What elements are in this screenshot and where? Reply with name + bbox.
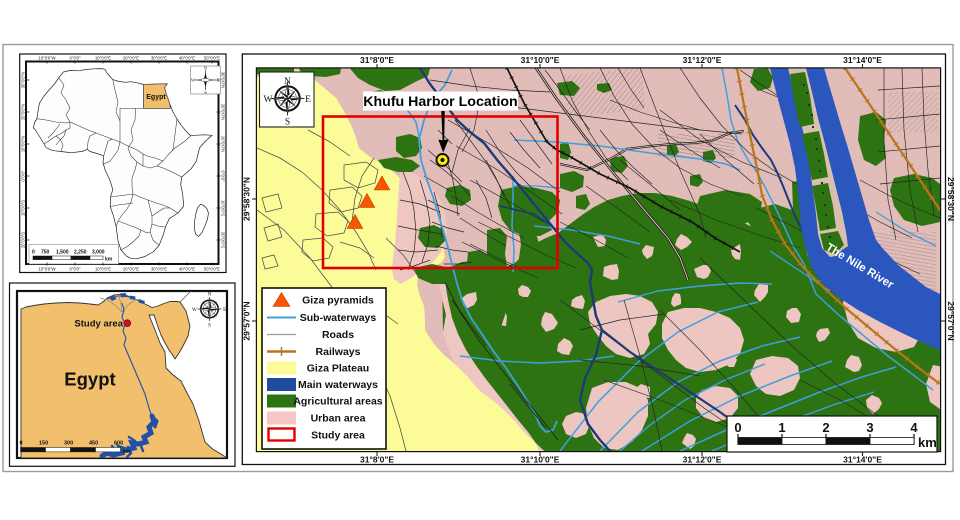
svg-text:20°0'0"N: 20°0'0"N: [221, 104, 226, 120]
svg-text:N: N: [208, 292, 212, 298]
svg-text:10°0'0"N: 10°0'0"N: [221, 136, 226, 152]
svg-text:450: 450: [89, 441, 98, 447]
svg-text:km: km: [105, 257, 113, 263]
svg-text:600: 600: [114, 441, 123, 447]
svg-text:Khufu Harbor Location: Khufu Harbor Location: [363, 94, 517, 110]
svg-text:Agricultural areas: Agricultural areas: [293, 396, 382, 408]
svg-text:0: 0: [32, 250, 35, 256]
svg-text:10°0'0"W: 10°0'0"W: [38, 56, 55, 61]
svg-text:31°10'0"E: 31°10'0"E: [521, 55, 560, 65]
svg-text:3: 3: [866, 420, 873, 435]
svg-text:Sub-waterways: Sub-waterways: [300, 312, 377, 324]
svg-text:1,500: 1,500: [56, 250, 69, 256]
svg-text:0°0'0": 0°0'0": [21, 170, 26, 181]
svg-text:20°0'0"S: 20°0'0"S: [21, 232, 26, 248]
svg-text:20°0'0"N: 20°0'0"N: [21, 104, 26, 120]
svg-text:29°57'0"N: 29°57'0"N: [946, 301, 956, 340]
svg-text:Urban area: Urban area: [311, 413, 366, 425]
svg-text:S: S: [285, 118, 290, 128]
svg-text:0°0'0": 0°0'0": [221, 171, 226, 182]
svg-text:31°12'0"E: 31°12'0"E: [683, 55, 722, 65]
svg-text:W: W: [192, 307, 197, 313]
svg-text:Egypt: Egypt: [146, 94, 166, 101]
svg-text:0: 0: [20, 441, 23, 447]
svg-text:10°0'0"E: 10°0'0"E: [95, 267, 111, 272]
svg-text:km: km: [918, 435, 937, 450]
svg-text:29°58'30"N: 29°58'30"N: [946, 177, 956, 221]
svg-text:S: S: [208, 322, 211, 328]
svg-text:0: 0: [734, 420, 741, 435]
svg-text:10°0'0"E: 10°0'0"E: [95, 56, 111, 61]
svg-text:31°14'0"E: 31°14'0"E: [843, 55, 882, 65]
svg-text:2: 2: [822, 420, 829, 435]
svg-text:Main waterways: Main waterways: [298, 379, 378, 391]
svg-text:40°0'0"E: 40°0'0"E: [179, 267, 195, 272]
svg-text:30°0'0"E: 30°0'0"E: [151, 56, 167, 61]
svg-text:31°8'0"E: 31°8'0"E: [360, 55, 394, 65]
svg-text:30°0'0"E: 30°0'0"E: [151, 267, 167, 272]
svg-text:40°0'0"E: 40°0'0"E: [179, 56, 195, 61]
svg-text:300: 300: [64, 441, 73, 447]
svg-text:30°0'0"N: 30°0'0"N: [221, 72, 226, 88]
svg-text:4: 4: [910, 420, 918, 435]
svg-text:Study area: Study area: [311, 430, 365, 442]
svg-text:150: 150: [39, 441, 48, 447]
svg-text:750: 750: [41, 250, 50, 256]
svg-text:50°0'0"E: 50°0'0"E: [204, 267, 220, 272]
svg-text:E: E: [305, 95, 311, 105]
svg-text:10°0'0"S: 10°0'0"S: [221, 200, 226, 216]
svg-text:10°0'0"S: 10°0'0"S: [21, 200, 26, 216]
svg-text:20°0'0"E: 20°0'0"E: [123, 56, 139, 61]
svg-text:2,250: 2,250: [74, 250, 87, 256]
svg-text:30°0'0"N: 30°0'0"N: [21, 72, 26, 88]
svg-text:Study area: Study area: [74, 319, 123, 330]
svg-text:20°0'0"S: 20°0'0"S: [221, 232, 226, 248]
svg-text:Railways: Railways: [316, 346, 361, 358]
svg-text:km: km: [123, 449, 131, 455]
svg-text:E: E: [223, 307, 226, 313]
svg-text:Giza pyramids: Giza pyramids: [302, 295, 374, 307]
svg-text:0°0'0": 0°0'0": [70, 267, 81, 272]
svg-text:20°0'0"E: 20°0'0"E: [123, 267, 139, 272]
svg-text:1: 1: [778, 420, 785, 435]
svg-text:50°0'0"E: 50°0'0"E: [204, 56, 220, 61]
svg-text:Egypt: Egypt: [64, 369, 115, 390]
svg-text:29°57'0"N: 29°57'0"N: [242, 301, 252, 340]
svg-text:3,000: 3,000: [92, 250, 105, 256]
svg-text:W: W: [264, 95, 273, 105]
svg-text:Roads: Roads: [322, 329, 354, 341]
svg-text:0°0'0": 0°0'0": [70, 56, 81, 61]
svg-text:10°0'0"W: 10°0'0"W: [38, 267, 55, 272]
svg-text:Giza Plateau: Giza Plateau: [307, 363, 369, 375]
svg-text:N: N: [284, 77, 291, 87]
svg-text:29°58'30"N: 29°58'30"N: [242, 177, 252, 221]
svg-text:10°0'0"N: 10°0'0"N: [21, 136, 26, 152]
